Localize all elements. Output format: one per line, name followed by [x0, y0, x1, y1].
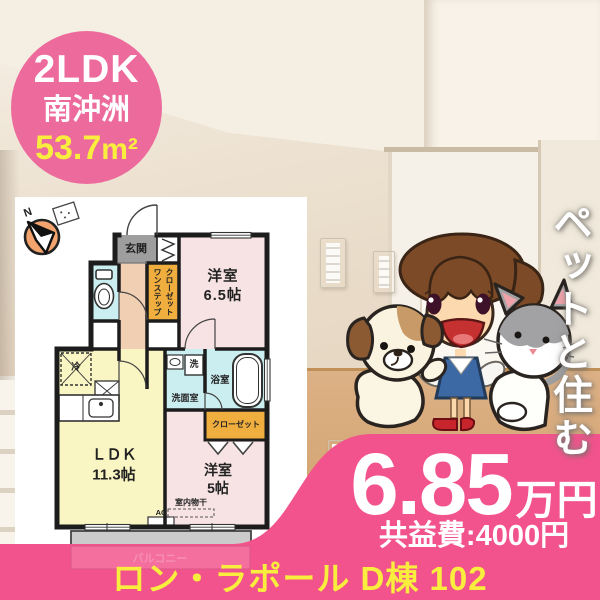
listing-flyer: 2LDK 南沖洲 53.7m²	[0, 0, 600, 600]
catchphrase-vertical: ペットと住む	[546, 202, 598, 474]
property-name: ロン・ラポール D棟 102	[0, 552, 600, 600]
maintenance-fee: 共益費:4000円	[348, 512, 600, 554]
